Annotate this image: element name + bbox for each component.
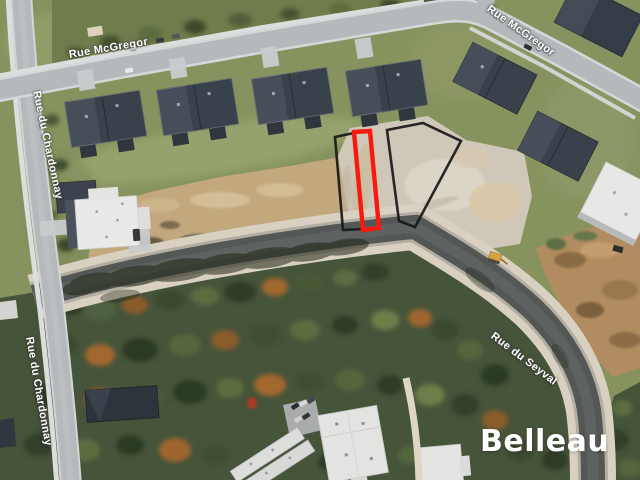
edge-structure [0, 418, 16, 448]
aerial-listing-map: Rue McGregor Rue McGregor Rue du Chardon… [0, 0, 640, 480]
belleau-logo: Belleau [480, 427, 609, 457]
edge-structure [0, 300, 18, 320]
apartment-building [318, 405, 390, 480]
red-tree [247, 397, 257, 409]
satellite-scene [0, 0, 640, 480]
dark-house [85, 386, 159, 423]
